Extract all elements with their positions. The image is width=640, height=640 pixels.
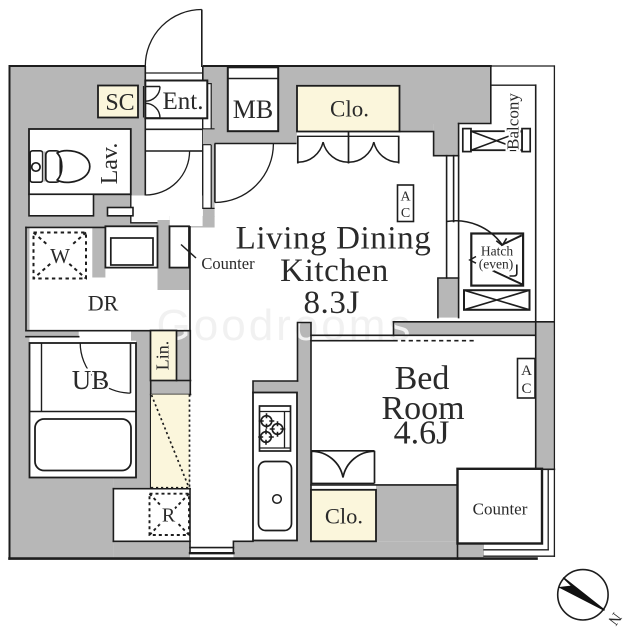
svg-text:Goodrooms: Goodrooms [157, 301, 414, 350]
svg-text:C: C [521, 381, 531, 397]
svg-text:Clo.: Clo. [325, 504, 363, 529]
svg-text:SC: SC [105, 90, 134, 116]
svg-text:C: C [401, 206, 410, 221]
svg-text:8.3J: 8.3J [303, 285, 360, 321]
svg-text:Counter: Counter [201, 254, 255, 273]
svg-text:Balcony: Balcony [504, 93, 523, 150]
svg-text:Kitchen: Kitchen [280, 253, 389, 289]
svg-text:A: A [400, 190, 411, 205]
svg-text:W: W [50, 244, 70, 268]
svg-text:UB: UB [72, 365, 110, 395]
svg-text:Ent.: Ent. [163, 88, 204, 115]
svg-text:R: R [162, 505, 176, 527]
svg-text:MB: MB [233, 95, 273, 124]
svg-text:Living Dining: Living Dining [236, 221, 432, 257]
svg-text:Counter: Counter [473, 500, 528, 519]
svg-text:Clo.: Clo. [330, 97, 369, 122]
svg-text:DR: DR [88, 291, 119, 316]
svg-text:4.6J: 4.6J [394, 414, 450, 451]
svg-text:A: A [521, 363, 532, 379]
svg-text:(even): (even) [479, 257, 513, 272]
svg-text:Lav.: Lav. [97, 143, 123, 185]
svg-text:Lin.: Lin. [153, 341, 173, 371]
